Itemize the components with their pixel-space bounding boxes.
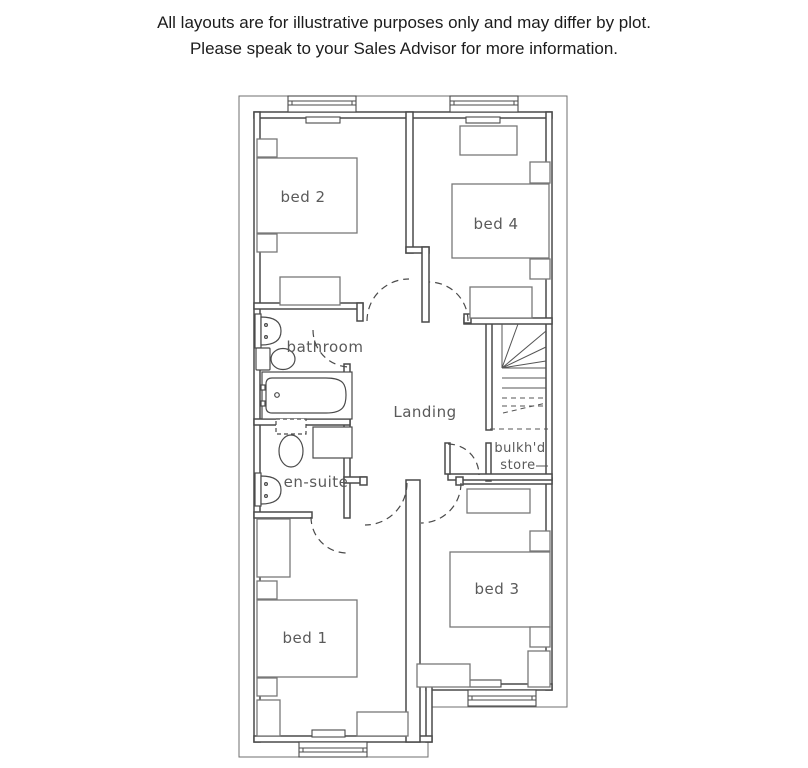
stair-winders [502,324,546,368]
wall-stairwell-left [486,318,492,430]
label-bed3: bed 3 [474,580,519,598]
bedside-table [530,259,550,279]
disclaimer: All layouts are for illustrative purpose… [0,10,808,62]
window-sill-bed2 [306,117,340,123]
toilet-icon [276,419,306,467]
label-bed1: bed 1 [282,629,327,647]
window-sill-bed3 [468,680,501,687]
bedside-table [530,162,550,183]
label-bed4: bed 4 [473,215,518,233]
door-arc-ensuite [311,517,347,553]
label-ensuite: en-suite [284,473,349,491]
label-bathroom: bathroom [287,338,364,356]
bed1-furniture [257,519,408,736]
floor-plan: bed 2 bed 4 bathroom Landing en-suite bu… [0,0,808,768]
chest-of-drawers [280,277,340,305]
disclaimer-line-1: All layouts are for illustrative purpose… [0,10,808,36]
label-store-line2: store [500,458,535,473]
bedside-table [257,678,277,696]
wardrobe [257,519,290,577]
chest-of-drawers [470,287,532,318]
window-sill-bed1 [312,730,345,737]
wall-top [254,112,552,118]
label-landing: Landing [393,403,456,421]
door-arc-bed2 [367,279,409,321]
door-arc-bed1 [365,483,407,525]
chest-of-drawers [357,712,408,736]
label-bed2: bed 2 [280,188,325,206]
bath-icon [261,372,352,419]
bathroom-fixtures [255,314,352,419]
door-leaf-store [445,443,450,474]
floorplan-page: All layouts are for illustrative purpose… [0,0,808,768]
door-arc-store [448,444,479,475]
chest-of-drawers [467,489,530,513]
label-store-line1: bulkh'd [494,441,545,456]
wardrobe [528,651,550,687]
stair-treads [502,378,546,388]
wall-bed4-bottom [464,318,552,324]
bedside-table [257,234,277,252]
stair-headroom-lines [502,398,546,413]
bedside-table [530,531,550,551]
bedside-table [257,581,277,599]
chest-of-drawers [417,664,470,687]
window-sill-bed4 [466,117,500,123]
disclaimer-line-2: Please speak to your Sales Advisor for m… [0,36,808,62]
shower-icon [313,427,352,458]
wall-center-top-lower [422,247,429,322]
door-arc-bed4 [429,282,468,321]
wall-center-bottom [406,480,420,742]
jamb-bed1-door [360,477,367,485]
wall-step [426,684,432,742]
wardrobe [257,700,280,736]
wall-center-top [406,112,413,253]
window-bed4 [450,96,518,123]
basin-icon [255,314,281,348]
wall-ensuite-bottom [254,512,312,518]
basin-icon [255,473,281,506]
stairs [502,324,546,413]
bedside-table [257,139,277,157]
bed2-furniture [257,139,357,305]
wall-bathroom-jamb [357,303,363,321]
ensuite-fixtures [255,419,352,506]
jamb-bed3-door [456,477,463,485]
window-bed2 [288,96,356,123]
door-arc-bed3 [421,483,461,523]
chest-of-drawers [460,126,517,155]
bedside-table [530,627,550,647]
